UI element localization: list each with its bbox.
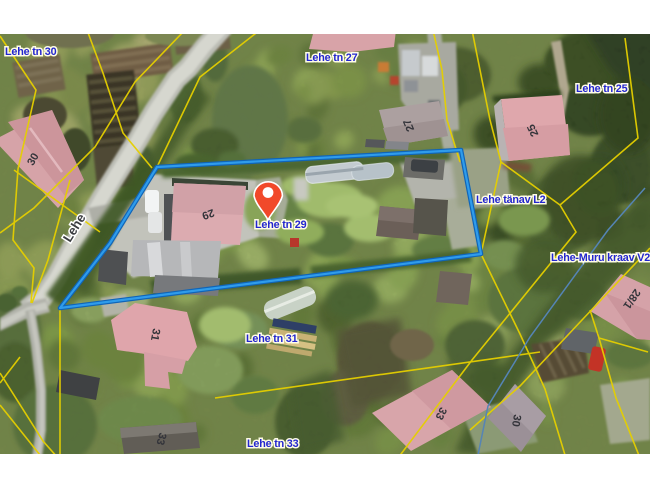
svg-text:Lehe-Muru kraav V2: Lehe-Muru kraav V2: [551, 252, 650, 264]
svg-text:Lehe tn 33: Lehe tn 33: [247, 438, 299, 450]
svg-text:Lehe tn 31: Lehe tn 31: [246, 333, 298, 345]
svg-text:Lehe tänav L2: Lehe tänav L2: [476, 194, 546, 206]
svg-text:Lehe tn 25: Lehe tn 25: [576, 83, 628, 95]
svg-text:Lehe tn 27: Lehe tn 27: [306, 52, 358, 64]
svg-text:Lehe tn 30: Lehe tn 30: [5, 46, 57, 58]
svg-text:31: 31: [148, 327, 162, 341]
svg-text:Lehe tn 29: Lehe tn 29: [255, 219, 307, 231]
svg-text:30: 30: [509, 413, 523, 427]
